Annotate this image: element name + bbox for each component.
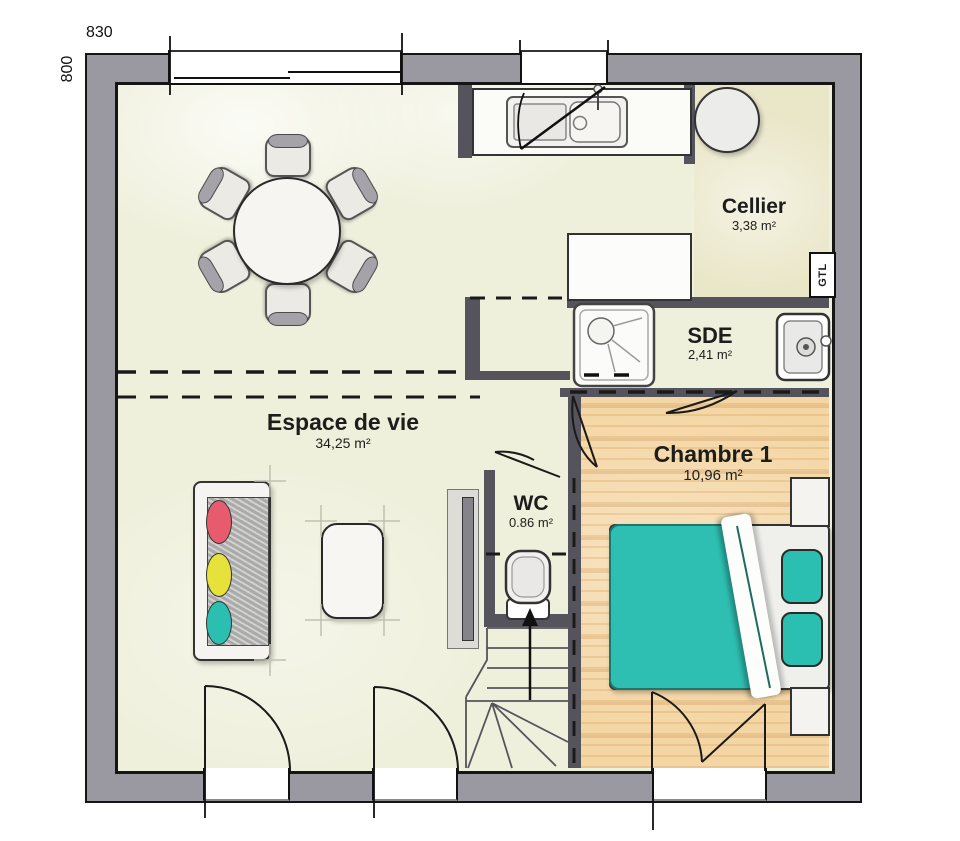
sofa-cushion-teal	[206, 601, 232, 645]
room-name: WC	[481, 492, 581, 516]
room-name: Espace de vie	[253, 409, 433, 435]
pillow	[781, 549, 823, 604]
partition-kitchen-left	[458, 85, 472, 158]
room-area: 10,96 m²	[623, 467, 803, 484]
room-area: 2,41 m²	[650, 348, 770, 363]
room-label-cellier: Cellier 3,38 m²	[684, 195, 824, 234]
chair-back	[268, 134, 308, 148]
coffee-table	[321, 523, 384, 619]
floor-plan-canvas: 830 800 GTL	[0, 0, 960, 841]
room-label-chambre-1: Chambre 1 10,96 m²	[623, 441, 803, 485]
room-area: 34,25 m²	[253, 435, 433, 451]
nightstand	[790, 687, 830, 736]
dining-chair	[265, 283, 311, 325]
dining-chair	[265, 135, 311, 177]
room-area: 0.86 m²	[481, 516, 581, 531]
room-label-espace-de-vie: Espace de vie 34,25 m²	[253, 409, 433, 452]
french-door-left	[203, 768, 290, 801]
kitchen-counter	[472, 88, 692, 156]
water-heater	[694, 87, 760, 153]
gtl-label: GTL	[817, 263, 829, 287]
sliding-panel-line	[288, 71, 400, 73]
dimension-label-width: 830	[86, 24, 113, 42]
room-name: Chambre 1	[623, 441, 803, 467]
room-name: Cellier	[684, 195, 824, 219]
pillow	[781, 612, 823, 667]
room-label-wc: WC 0.86 m²	[481, 492, 581, 531]
french-door-right	[372, 768, 458, 801]
bedroom-window	[652, 768, 767, 801]
partition-bedroom-north	[560, 388, 829, 397]
sliding-bay-window	[168, 50, 402, 85]
room-name: SDE	[650, 323, 770, 348]
chair-back	[268, 312, 308, 326]
dining-table	[233, 177, 341, 285]
sliding-panel-line	[174, 77, 290, 79]
cellier-appliance	[567, 233, 692, 301]
room-area: 3,38 m²	[684, 219, 824, 234]
tv-screen	[462, 497, 474, 641]
partition-wc-south	[484, 614, 574, 627]
partition-nook-south	[465, 371, 570, 380]
partition-hall-bedroom	[568, 388, 581, 768]
partition-nook-west	[465, 297, 480, 380]
dimension-label-height: 800	[59, 49, 77, 89]
sofa-cushion-yellow	[206, 553, 232, 597]
room-label-sde: SDE 2,41 m²	[650, 323, 770, 363]
kitchen-window	[520, 50, 608, 85]
sofa-cushion-red	[206, 500, 232, 544]
gtl-electrical-box: GTL	[809, 252, 836, 298]
